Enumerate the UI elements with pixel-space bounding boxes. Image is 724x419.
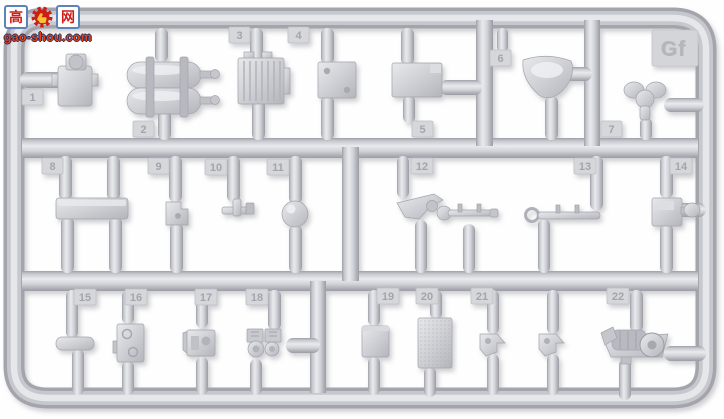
svg-text:10: 10 xyxy=(210,162,222,174)
svg-text:9: 9 xyxy=(155,161,161,173)
part-tag-20: 20 xyxy=(416,288,438,304)
svg-text:13: 13 xyxy=(579,161,591,173)
svg-text:16: 16 xyxy=(130,292,142,304)
part-tag-7: 7 xyxy=(601,121,622,137)
svg-text:15: 15 xyxy=(79,292,91,304)
part-14 xyxy=(652,198,700,226)
part-tag-15: 15 xyxy=(74,289,96,305)
svg-text:7: 7 xyxy=(608,124,614,136)
svg-text:14: 14 xyxy=(675,161,688,173)
svg-text:19: 19 xyxy=(382,291,394,303)
part-12 xyxy=(397,194,498,220)
part-22 xyxy=(601,327,668,364)
part-tag-17: 17 xyxy=(195,289,217,305)
part-6 xyxy=(523,56,573,98)
svg-text:11: 11 xyxy=(272,162,284,174)
part-19 xyxy=(362,326,389,357)
part-tag-10: 10 xyxy=(205,159,227,175)
part-7 xyxy=(624,82,666,120)
svg-text:8: 8 xyxy=(49,161,55,173)
sprue-letter-tab: Gf Gf xyxy=(652,30,698,66)
part-9 xyxy=(166,202,188,225)
svg-text:1: 1 xyxy=(29,92,35,104)
part-3 xyxy=(238,52,290,104)
watermark-domain: gao-shou.com xyxy=(4,30,92,44)
part-tag-2: 2 xyxy=(133,121,154,137)
part-4 xyxy=(318,62,356,98)
part-8 xyxy=(56,198,128,219)
svg-text:2: 2 xyxy=(140,124,146,136)
svg-text:4: 4 xyxy=(295,30,302,42)
svg-text:5: 5 xyxy=(419,124,425,136)
part-15 xyxy=(56,337,94,350)
svg-text:Gf: Gf xyxy=(661,38,686,61)
part-10 xyxy=(222,199,254,216)
part-tag-18: 18 xyxy=(246,289,268,305)
part-tag-22: 22 xyxy=(607,288,629,304)
svg-text:18: 18 xyxy=(251,292,263,304)
part-13 xyxy=(526,205,601,222)
watermark-logo: 高 网 xyxy=(4,5,92,29)
watermark: 高 网 gao-shou.com xyxy=(4,5,92,44)
part-tag-5: 5 xyxy=(412,121,433,137)
sprue-illustration: 1 2 3 4 5 6 7 8 9 10 11 12 13 14 15 16 1… xyxy=(0,0,724,419)
part-tag-14: 14 xyxy=(670,158,692,174)
part-tag-19: 19 xyxy=(377,288,399,304)
svg-text:21: 21 xyxy=(476,291,488,303)
svg-text:20: 20 xyxy=(421,291,433,303)
part-17 xyxy=(183,330,215,356)
part-tag-11: 11 xyxy=(267,159,289,175)
part-tag-3: 3 xyxy=(229,27,250,43)
part-tag-9: 9 xyxy=(148,158,169,174)
part-20 xyxy=(418,318,452,368)
part-1 xyxy=(52,54,98,106)
part-tag-6: 6 xyxy=(490,50,511,66)
svg-text:3: 3 xyxy=(236,30,242,42)
svg-text:22: 22 xyxy=(612,291,624,303)
watermark-char-right: 网 xyxy=(56,5,80,29)
gear-thumb-icon xyxy=(30,5,54,29)
part-5 xyxy=(392,63,442,97)
part-tag-8: 8 xyxy=(42,158,63,174)
part-21 xyxy=(480,334,564,356)
part-tag-13: 13 xyxy=(574,158,596,174)
part-16 xyxy=(113,324,144,362)
watermark-char-left: 高 xyxy=(4,5,28,29)
svg-text:17: 17 xyxy=(200,292,212,304)
sprue-photo: 1 2 3 4 5 6 7 8 9 10 11 12 13 14 15 16 1… xyxy=(0,0,724,419)
part-tag-4: 4 xyxy=(288,27,309,43)
part-11 xyxy=(282,201,308,227)
part-tag-16: 16 xyxy=(125,289,147,305)
part-18 xyxy=(247,329,281,357)
svg-text:12: 12 xyxy=(416,161,428,173)
part-tag-21: 21 xyxy=(471,288,493,304)
part-tag-12: 12 xyxy=(411,158,433,174)
part-2 xyxy=(127,57,220,117)
part-tag-1: 1 xyxy=(22,89,43,105)
svg-text:6: 6 xyxy=(497,53,503,65)
